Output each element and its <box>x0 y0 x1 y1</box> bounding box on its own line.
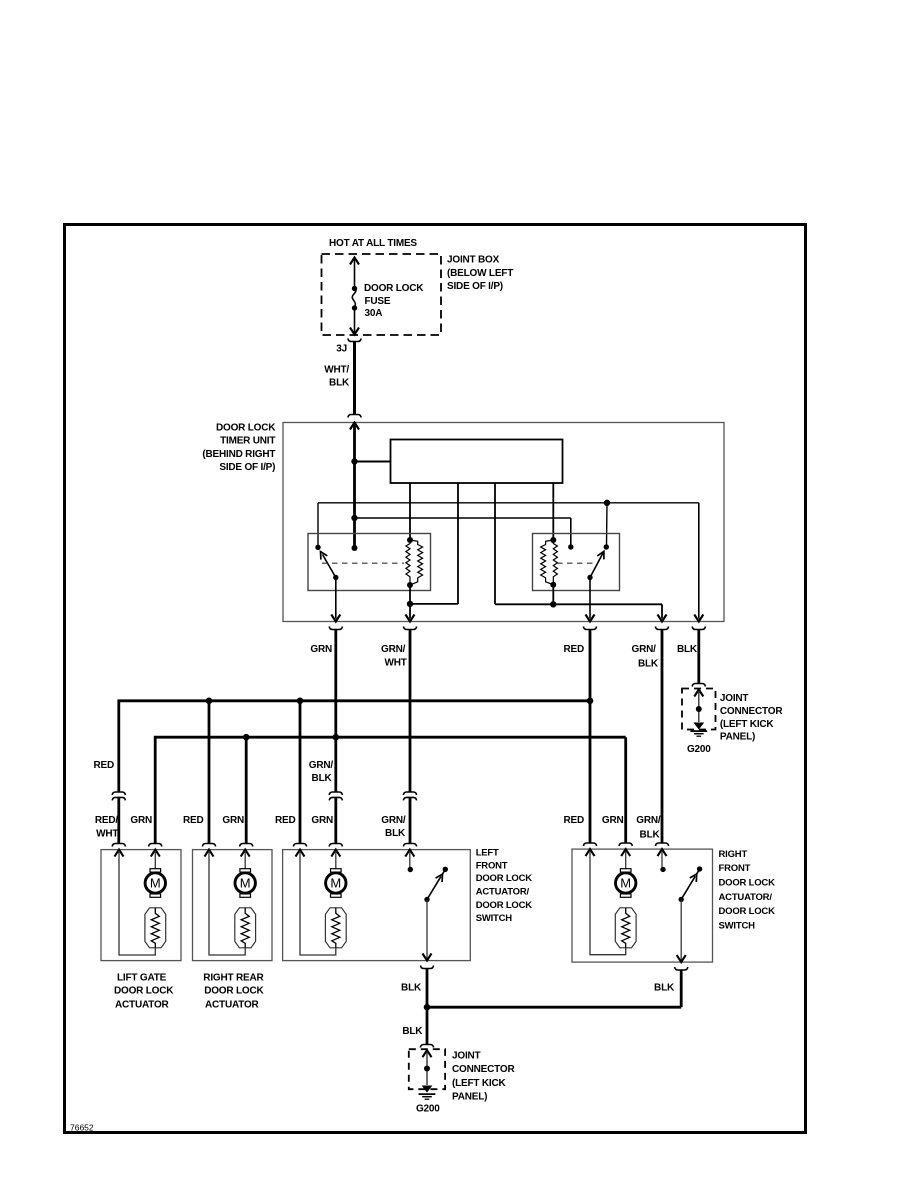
svg-text:GRN/: GRN/ <box>309 760 334 771</box>
svg-text:BLK: BLK <box>401 982 422 993</box>
svg-text:BLK: BLK <box>402 1026 423 1037</box>
svg-text:WHT: WHT <box>385 658 407 669</box>
svg-text:DOOR LOCK: DOOR LOCK <box>364 283 424 294</box>
svg-text:FUSE: FUSE <box>365 296 391 307</box>
svg-text:GRN/: GRN/ <box>636 815 661 826</box>
svg-text:JOINT: JOINT <box>452 1051 481 1062</box>
svg-text:RED: RED <box>275 815 296 826</box>
svg-text:DOOR LOCK: DOOR LOCK <box>719 906 776 917</box>
svg-text:ACTUATOR/: ACTUATOR/ <box>476 887 530 898</box>
svg-text:GRN/: GRN/ <box>381 644 406 655</box>
svg-text:BLK: BLK <box>677 644 698 655</box>
svg-text:SWITCH: SWITCH <box>719 921 756 932</box>
svg-text:WHT: WHT <box>96 829 118 840</box>
svg-text:SWITCH: SWITCH <box>476 913 513 924</box>
svg-text:GRN: GRN <box>130 815 152 826</box>
svg-text:ACTUATOR: ACTUATOR <box>205 1000 260 1011</box>
svg-text:SIDE OF I/P): SIDE OF I/P) <box>219 462 275 473</box>
svg-text:RED: RED <box>93 760 114 771</box>
svg-text:DOOR LOCK: DOOR LOCK <box>216 422 276 433</box>
svg-text:GRN: GRN <box>311 815 333 826</box>
svg-text:RED: RED <box>563 815 584 826</box>
svg-text:DOOR LOCK: DOOR LOCK <box>114 986 174 997</box>
svg-text:RED: RED <box>183 815 204 826</box>
svg-text:GRN: GRN <box>310 644 332 655</box>
svg-text:G200: G200 <box>416 1104 440 1115</box>
svg-text:WHT/: WHT/ <box>324 365 349 376</box>
svg-text:BLK: BLK <box>329 378 350 389</box>
svg-text:DOOR LOCK: DOOR LOCK <box>719 878 776 889</box>
svg-text:CONNECTOR: CONNECTOR <box>452 1064 515 1075</box>
svg-text:RED: RED <box>563 644 584 655</box>
svg-text:3J: 3J <box>336 344 347 355</box>
svg-text:GRN: GRN <box>222 815 244 826</box>
svg-text:(LEFT KICK: (LEFT KICK <box>452 1078 507 1089</box>
svg-text:FRONT: FRONT <box>719 863 751 874</box>
svg-text:BLK: BLK <box>638 659 659 670</box>
svg-text:30A: 30A <box>365 308 383 319</box>
svg-text:DOOR LOCK: DOOR LOCK <box>204 986 264 997</box>
svg-text:DOOR LOCK: DOOR LOCK <box>476 900 533 911</box>
svg-text:LEFT: LEFT <box>476 848 499 859</box>
svg-text:(LEFT KICK: (LEFT KICK <box>720 719 775 730</box>
svg-text:RIGHT: RIGHT <box>719 849 748 860</box>
svg-text:GRN/: GRN/ <box>381 815 406 826</box>
svg-text:(BELOW LEFT: (BELOW LEFT <box>447 268 513 279</box>
svg-text:DOOR LOCK: DOOR LOCK <box>476 873 533 884</box>
svg-text:SIDE OF I/P): SIDE OF I/P) <box>447 281 503 292</box>
svg-text:FRONT: FRONT <box>476 861 508 872</box>
svg-text:HOT AT ALL TIMES: HOT AT ALL TIMES <box>329 238 417 249</box>
svg-text:RED/: RED/ <box>95 815 119 826</box>
svg-text:CONNECTOR: CONNECTOR <box>720 706 783 717</box>
svg-text:BLK: BLK <box>312 773 333 784</box>
svg-text:76652: 76652 <box>70 1123 94 1133</box>
svg-text:ACTUATOR/: ACTUATOR/ <box>719 892 773 903</box>
svg-text:TIMER UNIT: TIMER UNIT <box>220 436 275 447</box>
svg-text:PANEL): PANEL) <box>720 732 755 743</box>
svg-text:(BEHIND RIGHT: (BEHIND RIGHT <box>202 449 275 460</box>
svg-text:BLK: BLK <box>640 830 661 841</box>
svg-text:RIGHT REAR: RIGHT REAR <box>203 973 264 984</box>
svg-text:BLK: BLK <box>654 982 675 993</box>
svg-text:JOINT: JOINT <box>720 693 749 704</box>
svg-text:JOINT BOX: JOINT BOX <box>447 255 500 266</box>
svg-text:BLK: BLK <box>385 828 406 839</box>
svg-text:PANEL): PANEL) <box>452 1092 487 1103</box>
svg-text:G200: G200 <box>687 744 711 755</box>
svg-text:ACTUATOR: ACTUATOR <box>115 1000 170 1011</box>
svg-text:GRN/: GRN/ <box>632 644 657 655</box>
svg-text:LIFT GATE: LIFT GATE <box>117 973 167 984</box>
svg-text:GRN: GRN <box>602 815 624 826</box>
